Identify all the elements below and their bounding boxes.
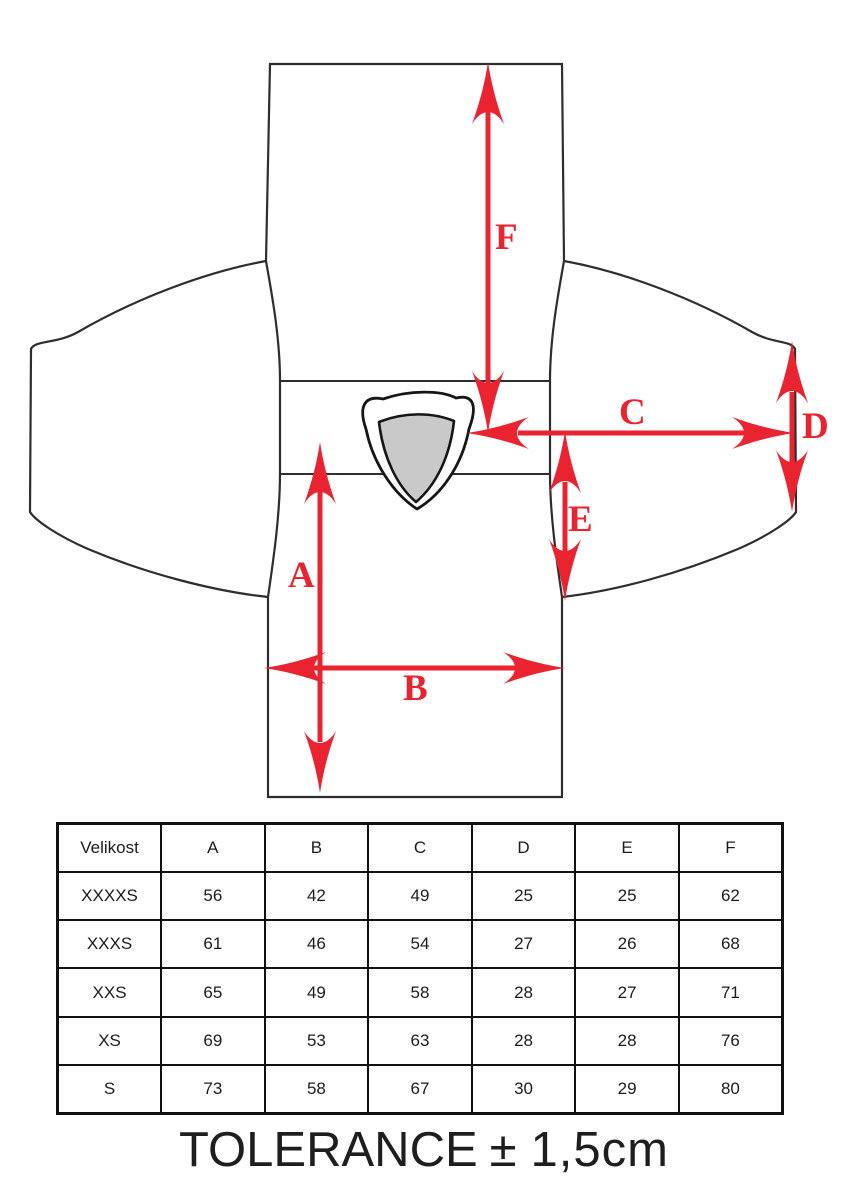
header-cell: D: [472, 824, 576, 872]
size-cell: 26: [575, 920, 679, 968]
table-row: XS695363282876: [58, 1017, 783, 1065]
tolerance-value: 1,5cm: [531, 1123, 669, 1177]
page: F C D E A B VelikostABCDEFXXXXS564249252…: [0, 0, 848, 1200]
size-cell: 65: [161, 968, 265, 1016]
plusminus-sign: ±: [490, 1123, 517, 1177]
size-cell: 61: [161, 920, 265, 968]
size-cell: 28: [472, 968, 576, 1016]
size-cell: 53: [265, 1017, 369, 1065]
size-cell: 25: [472, 872, 576, 920]
size-table-body: VelikostABCDEFXXXXS564249252562XXXS61465…: [58, 824, 783, 1114]
size-cell: 76: [679, 1017, 783, 1065]
measurement-label-e: E: [568, 499, 593, 540]
size-cell: 67: [368, 1065, 472, 1113]
jersey-left-sleeve: [30, 261, 268, 597]
header-cell: B: [265, 824, 369, 872]
size-cell: 54: [368, 920, 472, 968]
size-cell: 68: [679, 920, 783, 968]
size-cell: 71: [679, 968, 783, 1016]
size-cell: XXXS: [58, 920, 162, 968]
size-cell: 25: [575, 872, 679, 920]
garment-measurement-diagram: F C D E A B: [0, 0, 848, 818]
size-cell: 69: [161, 1017, 265, 1065]
size-cell: 28: [575, 1017, 679, 1065]
size-cell: 28: [472, 1017, 576, 1065]
header-cell: E: [575, 824, 679, 872]
header-cell: C: [368, 824, 472, 872]
size-cell: 30: [472, 1065, 576, 1113]
size-cell: 49: [265, 968, 369, 1016]
size-cell: 56: [161, 872, 265, 920]
size-cell: XXXXS: [58, 872, 162, 920]
size-cell: 62: [679, 872, 783, 920]
size-cell: 27: [575, 968, 679, 1016]
size-cell: 58: [368, 968, 472, 1016]
size-cell: 29: [575, 1065, 679, 1113]
table-row: XXS654958282771: [58, 968, 783, 1016]
measurement-label-a: A: [288, 555, 315, 596]
size-cell: 46: [265, 920, 369, 968]
table-row: XXXS614654272668: [58, 920, 783, 968]
size-cell: 58: [265, 1065, 369, 1113]
header-cell: Velikost: [58, 824, 162, 872]
header-cell: A: [161, 824, 265, 872]
size-cell: XXS: [58, 968, 162, 1016]
tolerance-note: TOLERANCE±1,5cm: [0, 1122, 848, 1178]
size-cell: 49: [368, 872, 472, 920]
measurement-label-c: C: [619, 392, 646, 433]
size-cell: 42: [265, 872, 369, 920]
size-cell: 27: [472, 920, 576, 968]
measurement-label-d: D: [802, 406, 829, 447]
header-cell: F: [679, 824, 783, 872]
table-header-row: VelikostABCDEF: [58, 824, 783, 872]
tolerance-label: TOLERANCE: [179, 1123, 478, 1177]
size-cell: XS: [58, 1017, 162, 1065]
size-cell: 73: [161, 1065, 265, 1113]
table-row: S735867302980: [58, 1065, 783, 1113]
size-table: VelikostABCDEFXXXXS564249252562XXXS61465…: [56, 822, 784, 1115]
measurement-label-b: B: [403, 668, 428, 709]
size-cell: S: [58, 1065, 162, 1113]
size-cell: 63: [368, 1017, 472, 1065]
measurement-label-f: F: [495, 217, 518, 258]
size-cell: 80: [679, 1065, 783, 1113]
table-row: XXXXS564249252562: [58, 872, 783, 920]
